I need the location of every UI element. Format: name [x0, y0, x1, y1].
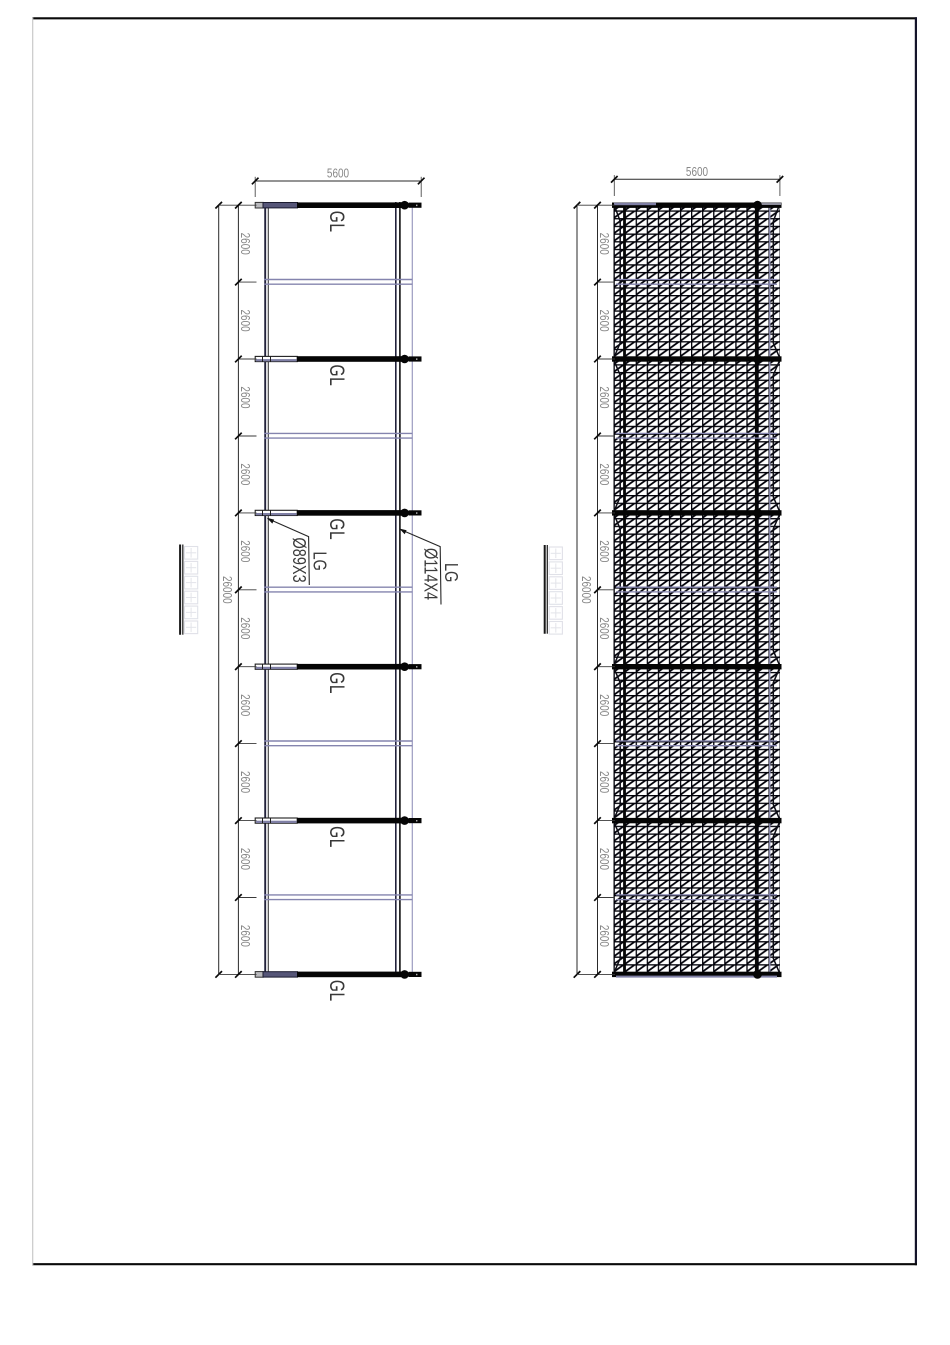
svg-text:26000: 26000 — [219, 576, 234, 604]
svg-text:2600: 2600 — [596, 848, 611, 871]
svg-text:2600: 2600 — [596, 617, 611, 640]
svg-text:GL: GL — [325, 365, 349, 387]
svg-text:2600: 2600 — [238, 386, 253, 409]
svg-text:Ø114X4: Ø114X4 — [420, 548, 440, 600]
svg-text:2600: 2600 — [238, 540, 253, 563]
svg-text:2600: 2600 — [596, 771, 611, 794]
svg-text:GL: GL — [325, 211, 349, 233]
svg-text:2600: 2600 — [238, 617, 253, 640]
svg-text:2600: 2600 — [596, 386, 611, 409]
svg-text:LG: LG — [309, 552, 329, 571]
svg-text:Ø89X3: Ø89X3 — [288, 538, 308, 583]
svg-text:5600: 5600 — [327, 166, 350, 181]
svg-text:2600: 2600 — [596, 463, 611, 486]
svg-text:2600: 2600 — [238, 463, 253, 486]
svg-text:GL: GL — [325, 980, 349, 1002]
svg-text:GL: GL — [325, 826, 349, 848]
svg-text:2600: 2600 — [596, 310, 611, 333]
svg-text:2600: 2600 — [238, 771, 253, 794]
svg-text:26000: 26000 — [578, 576, 593, 604]
svg-text:5600: 5600 — [686, 165, 709, 180]
svg-text:2600: 2600 — [238, 310, 253, 333]
svg-text:LG: LG — [441, 563, 461, 582]
svg-text:GL: GL — [325, 672, 349, 694]
svg-text:2600: 2600 — [596, 694, 611, 717]
svg-text:GL: GL — [325, 518, 349, 540]
svg-text:2600: 2600 — [596, 540, 611, 563]
svg-text:2600: 2600 — [238, 694, 253, 717]
svg-text:2600: 2600 — [596, 925, 611, 948]
svg-text:2600: 2600 — [238, 233, 253, 256]
svg-text:2600: 2600 — [596, 233, 611, 256]
svg-text:2600: 2600 — [238, 848, 253, 871]
svg-text:2600: 2600 — [238, 925, 253, 948]
